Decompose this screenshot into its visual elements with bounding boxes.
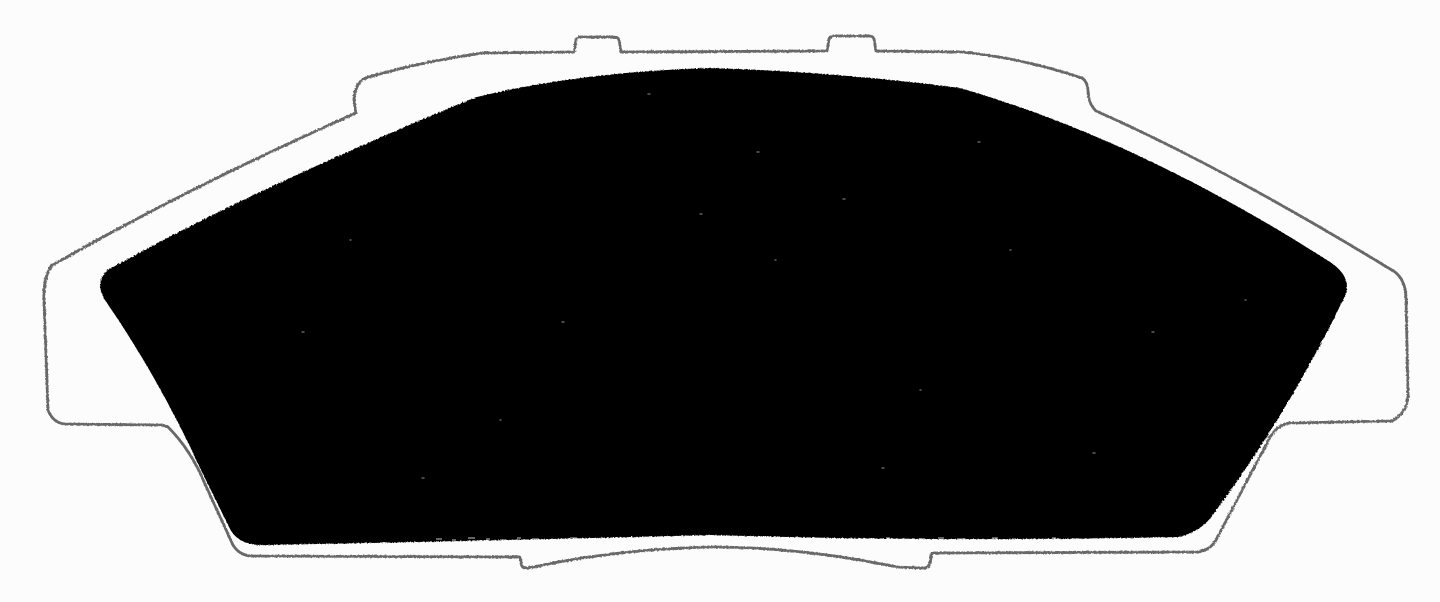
brake-pad-figure xyxy=(0,0,1440,602)
scanned-brake-pad-image xyxy=(0,0,1440,602)
